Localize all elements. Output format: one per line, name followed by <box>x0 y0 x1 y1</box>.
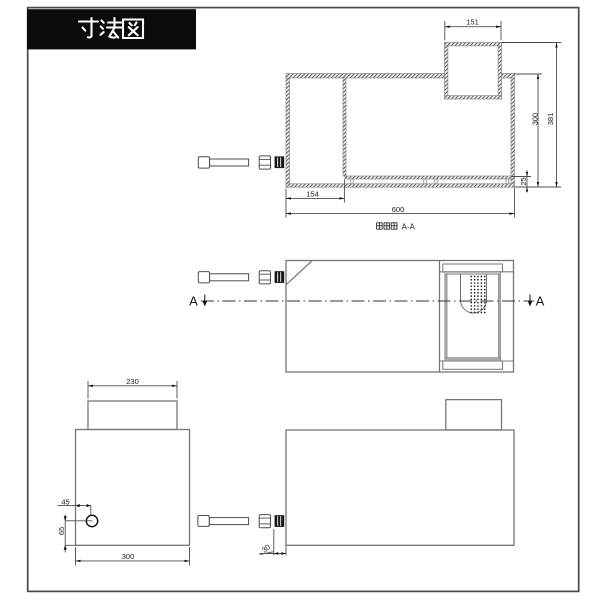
svg-text:230: 230 <box>126 377 139 386</box>
svg-text:381: 381 <box>546 113 555 126</box>
svg-text:600: 600 <box>392 205 405 214</box>
svg-text:300: 300 <box>530 113 539 126</box>
svg-text:151: 151 <box>466 18 479 27</box>
svg-text:45: 45 <box>61 497 69 506</box>
svg-text:65: 65 <box>57 527 66 535</box>
svg-text:A: A <box>536 294 545 309</box>
svg-text:300: 300 <box>122 552 135 561</box>
svg-text:154: 154 <box>306 190 319 199</box>
svg-text:A-A: A-A <box>402 222 416 231</box>
svg-text:A: A <box>189 294 198 309</box>
svg-text:25: 25 <box>519 177 528 185</box>
